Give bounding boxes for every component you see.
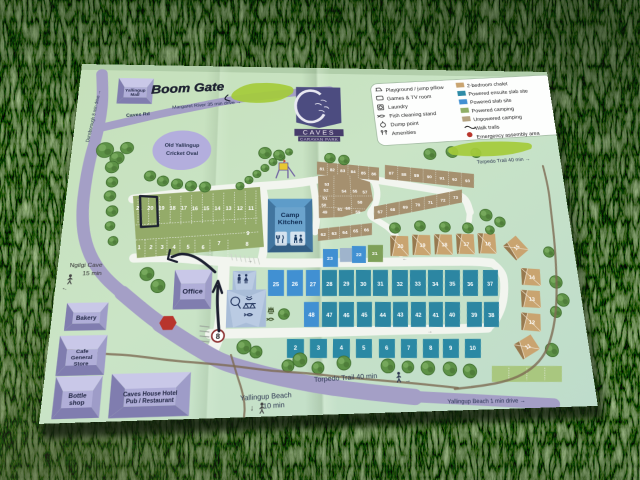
svg-text:17: 17 [181, 206, 188, 212]
svg-text:Store: Store [73, 360, 89, 367]
svg-text:Mall: Mall [130, 92, 139, 97]
svg-text:shop: shop [69, 400, 85, 408]
svg-text:42: 42 [415, 312, 422, 319]
svg-text:8: 8 [216, 333, 221, 341]
svg-text:10 min: 10 min [263, 402, 285, 411]
svg-text:66: 66 [364, 227, 370, 232]
svg-text:46: 46 [343, 312, 350, 319]
svg-text:26: 26 [292, 281, 299, 288]
svg-text:67: 67 [378, 209, 384, 214]
svg-text:34: 34 [432, 282, 439, 289]
svg-text:14: 14 [214, 206, 221, 212]
svg-text:88: 88 [401, 172, 407, 177]
svg-text:18: 18 [169, 206, 176, 212]
svg-text:82: 82 [330, 167, 336, 172]
svg-text:22: 22 [356, 252, 362, 257]
svg-text:28: 28 [326, 281, 333, 288]
svg-text:12: 12 [529, 319, 536, 326]
svg-text:25: 25 [273, 281, 280, 288]
svg-text:44: 44 [380, 312, 387, 319]
svg-text:65: 65 [353, 228, 359, 233]
svg-text:20: 20 [147, 206, 154, 212]
svg-text:83: 83 [340, 168, 346, 173]
svg-text:86: 86 [371, 171, 377, 176]
svg-text:4: 4 [340, 345, 344, 352]
svg-text:5: 5 [362, 345, 366, 352]
svg-text:31: 31 [377, 281, 384, 288]
svg-text:15: 15 [203, 206, 210, 212]
svg-text:64: 64 [342, 230, 348, 235]
svg-text:39: 39 [471, 312, 478, 319]
svg-text:CARAVAN PARK: CARAVAN PARK [300, 137, 338, 142]
svg-text:←: ← [402, 256, 407, 261]
svg-text:40: 40 [449, 312, 456, 319]
svg-text:Kitchen: Kitchen [278, 220, 303, 226]
svg-text:10: 10 [469, 345, 476, 352]
svg-text:14: 14 [529, 275, 536, 282]
svg-text:38: 38 [488, 312, 495, 319]
svg-text:30: 30 [360, 282, 367, 289]
svg-text:20: 20 [397, 244, 403, 251]
svg-text:45: 45 [361, 312, 368, 319]
svg-text:Office: Office [182, 289, 203, 296]
svg-text:Cricket Oval: Cricket Oval [166, 151, 199, 157]
svg-text:85: 85 [361, 170, 367, 175]
svg-text:36: 36 [467, 282, 474, 289]
svg-text:43: 43 [397, 312, 404, 319]
svg-text:17: 17 [463, 242, 470, 248]
svg-text:Yallingup Beach 1 min drive →: Yallingup Beach 1 min drive → [447, 398, 526, 406]
svg-text:13: 13 [529, 296, 536, 303]
svg-text:33: 33 [415, 281, 422, 288]
svg-text:16: 16 [485, 241, 492, 247]
svg-text:Bottle: Bottle [68, 393, 87, 401]
svg-text:19: 19 [158, 206, 165, 212]
svg-text:23: 23 [327, 256, 333, 261]
svg-text:12: 12 [237, 206, 244, 212]
svg-text:27: 27 [310, 281, 317, 288]
svg-text:19: 19 [419, 243, 426, 249]
svg-text:Laundry: Laundry [388, 104, 409, 111]
svg-text:18: 18 [441, 242, 448, 248]
svg-text:13: 13 [226, 206, 233, 212]
svg-text:2: 2 [294, 345, 298, 352]
svg-text:Bakery: Bakery [76, 315, 97, 323]
svg-text:→: → [405, 377, 411, 384]
svg-text:47: 47 [326, 312, 333, 319]
svg-text:Old Yallingup: Old Yallingup [164, 143, 199, 149]
svg-text:87: 87 [389, 170, 395, 175]
svg-text:41: 41 [432, 312, 439, 319]
svg-text:9: 9 [246, 231, 250, 237]
svg-text:48: 48 [308, 312, 315, 319]
svg-text:Ngilgi Cave: Ngilgi Cave [69, 262, 102, 269]
svg-text:37: 37 [487, 282, 494, 289]
svg-text:15 min: 15 min [82, 270, 102, 277]
svg-text:68: 68 [390, 207, 396, 212]
svg-text:8: 8 [245, 242, 249, 249]
svg-text:11: 11 [248, 206, 254, 212]
svg-text:6: 6 [385, 345, 389, 352]
svg-text:Camp: Camp [281, 213, 300, 219]
svg-text:63: 63 [331, 231, 337, 236]
svg-text:CAVES: CAVES [303, 130, 336, 137]
svg-text:29: 29 [343, 281, 350, 288]
svg-text:84: 84 [351, 169, 357, 174]
svg-text:16: 16 [192, 206, 199, 212]
svg-text:35: 35 [449, 282, 456, 289]
svg-text:62: 62 [321, 232, 327, 237]
svg-text:→: → [247, 258, 252, 264]
svg-text:↓: ↓ [250, 404, 254, 413]
svg-text:3: 3 [317, 345, 321, 352]
svg-text:21: 21 [372, 251, 378, 256]
svg-text:32: 32 [397, 282, 404, 289]
svg-text:→: → [427, 328, 433, 334]
svg-text:81: 81 [319, 166, 325, 171]
